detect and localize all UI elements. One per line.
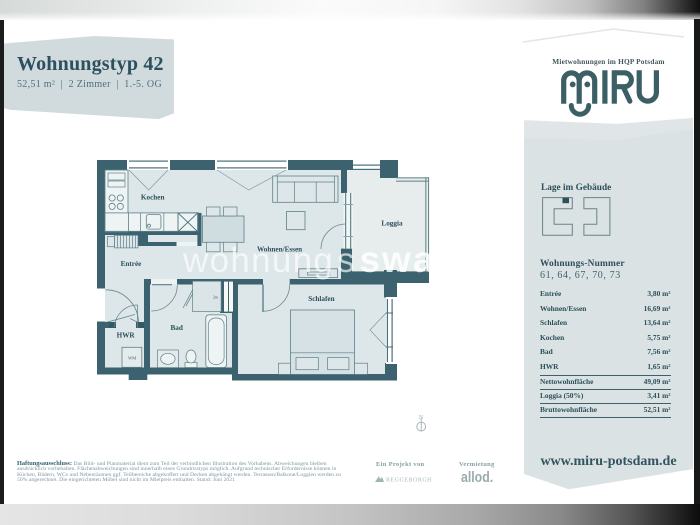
svg-text:REGGEBORGH: REGGEBORGH <box>386 478 432 484</box>
svg-text:WM: WM <box>128 356 136 361</box>
svg-text:wohnungsswap: wohnungsswap <box>182 239 460 280</box>
svg-text:Entrée: Entrée <box>121 260 142 268</box>
svg-text:Schlafen: Schlafen <box>308 295 334 303</box>
svg-text:Bad: Bad <box>171 324 183 332</box>
svg-text:HWR: HWR <box>117 332 136 340</box>
svg-text:Loggia: Loggia <box>381 220 403 228</box>
svg-text:2m: 2m <box>213 295 219 300</box>
svg-text:Kochen: Kochen <box>141 194 165 202</box>
